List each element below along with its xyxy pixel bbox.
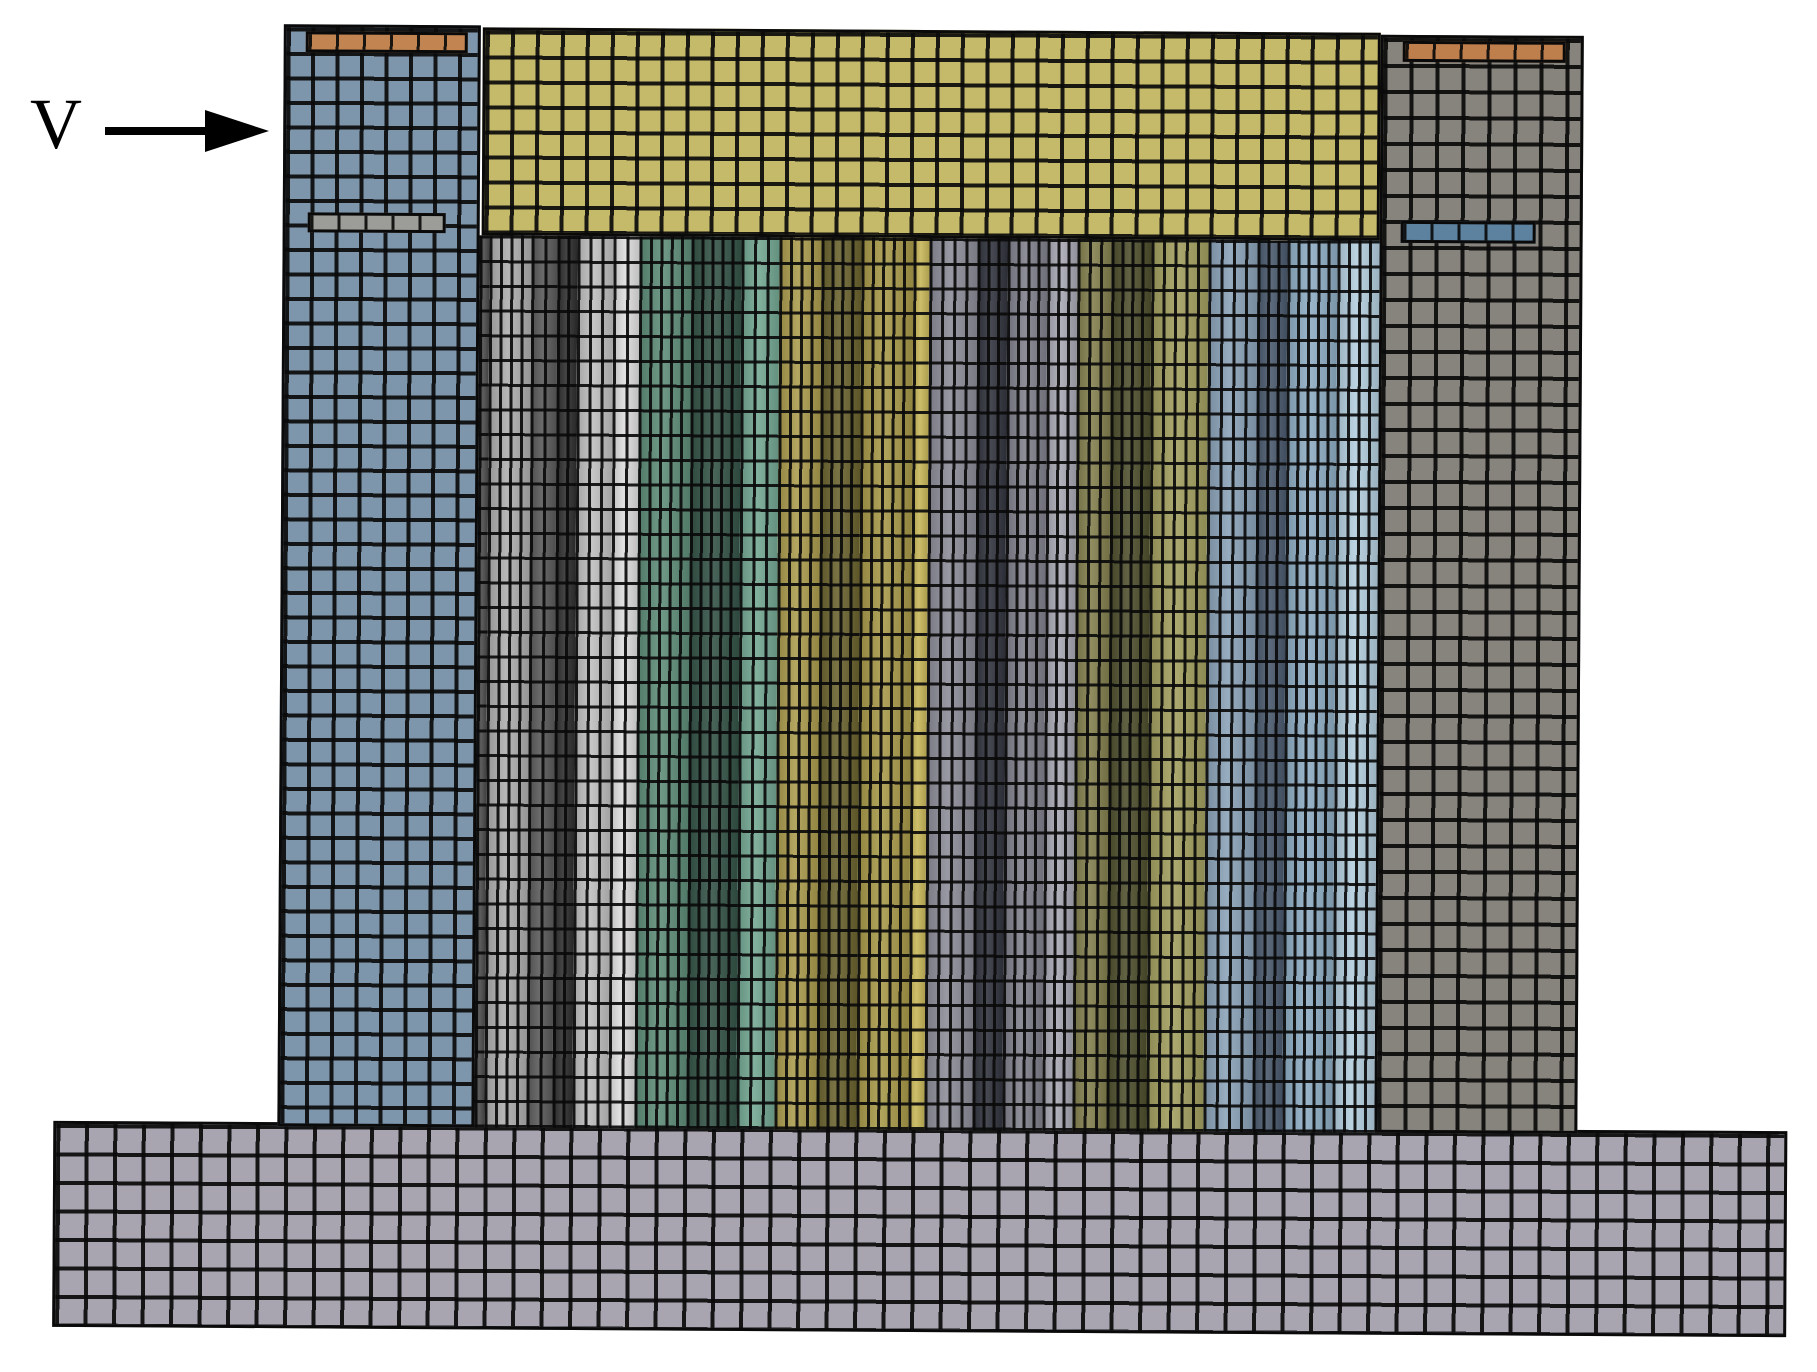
mesh-assembly — [0, 0, 1817, 1372]
layer-stripe-11 — [816, 237, 861, 1129]
left-column-grey-strip — [308, 212, 446, 233]
layer-stripe-7 — [634, 236, 691, 1128]
layer-stripe-12 — [856, 238, 913, 1130]
layer-stripe-20 — [1146, 239, 1208, 1131]
left-blue-column — [277, 24, 481, 1127]
layer-stripe-16 — [1002, 239, 1047, 1131]
layer-stripe-18 — [1072, 239, 1111, 1131]
fe-mesh-figure: V — [0, 0, 1817, 1372]
layer-stripe-9 — [736, 237, 779, 1129]
right-column-orange-strip — [1403, 41, 1566, 63]
layer-stripe-21 — [1203, 240, 1257, 1132]
layer-stripe-8 — [686, 237, 741, 1129]
layer-stripe-10 — [774, 237, 821, 1129]
layer-stripe-23 — [1282, 240, 1337, 1132]
left-column-orange-strip — [306, 31, 468, 53]
layer-stripe-14 — [924, 238, 977, 1130]
right-column-blue-strip — [1401, 221, 1536, 244]
top-yellow-block — [482, 27, 1381, 240]
layer-stripe-24 — [1332, 240, 1379, 1132]
base-plate — [52, 1121, 1787, 1337]
layer-stripe-5 — [572, 236, 613, 1128]
layer-stripe-19 — [1106, 239, 1151, 1131]
right-grey-column — [1374, 35, 1584, 1134]
layer-stripe-2 — [484, 235, 531, 1127]
